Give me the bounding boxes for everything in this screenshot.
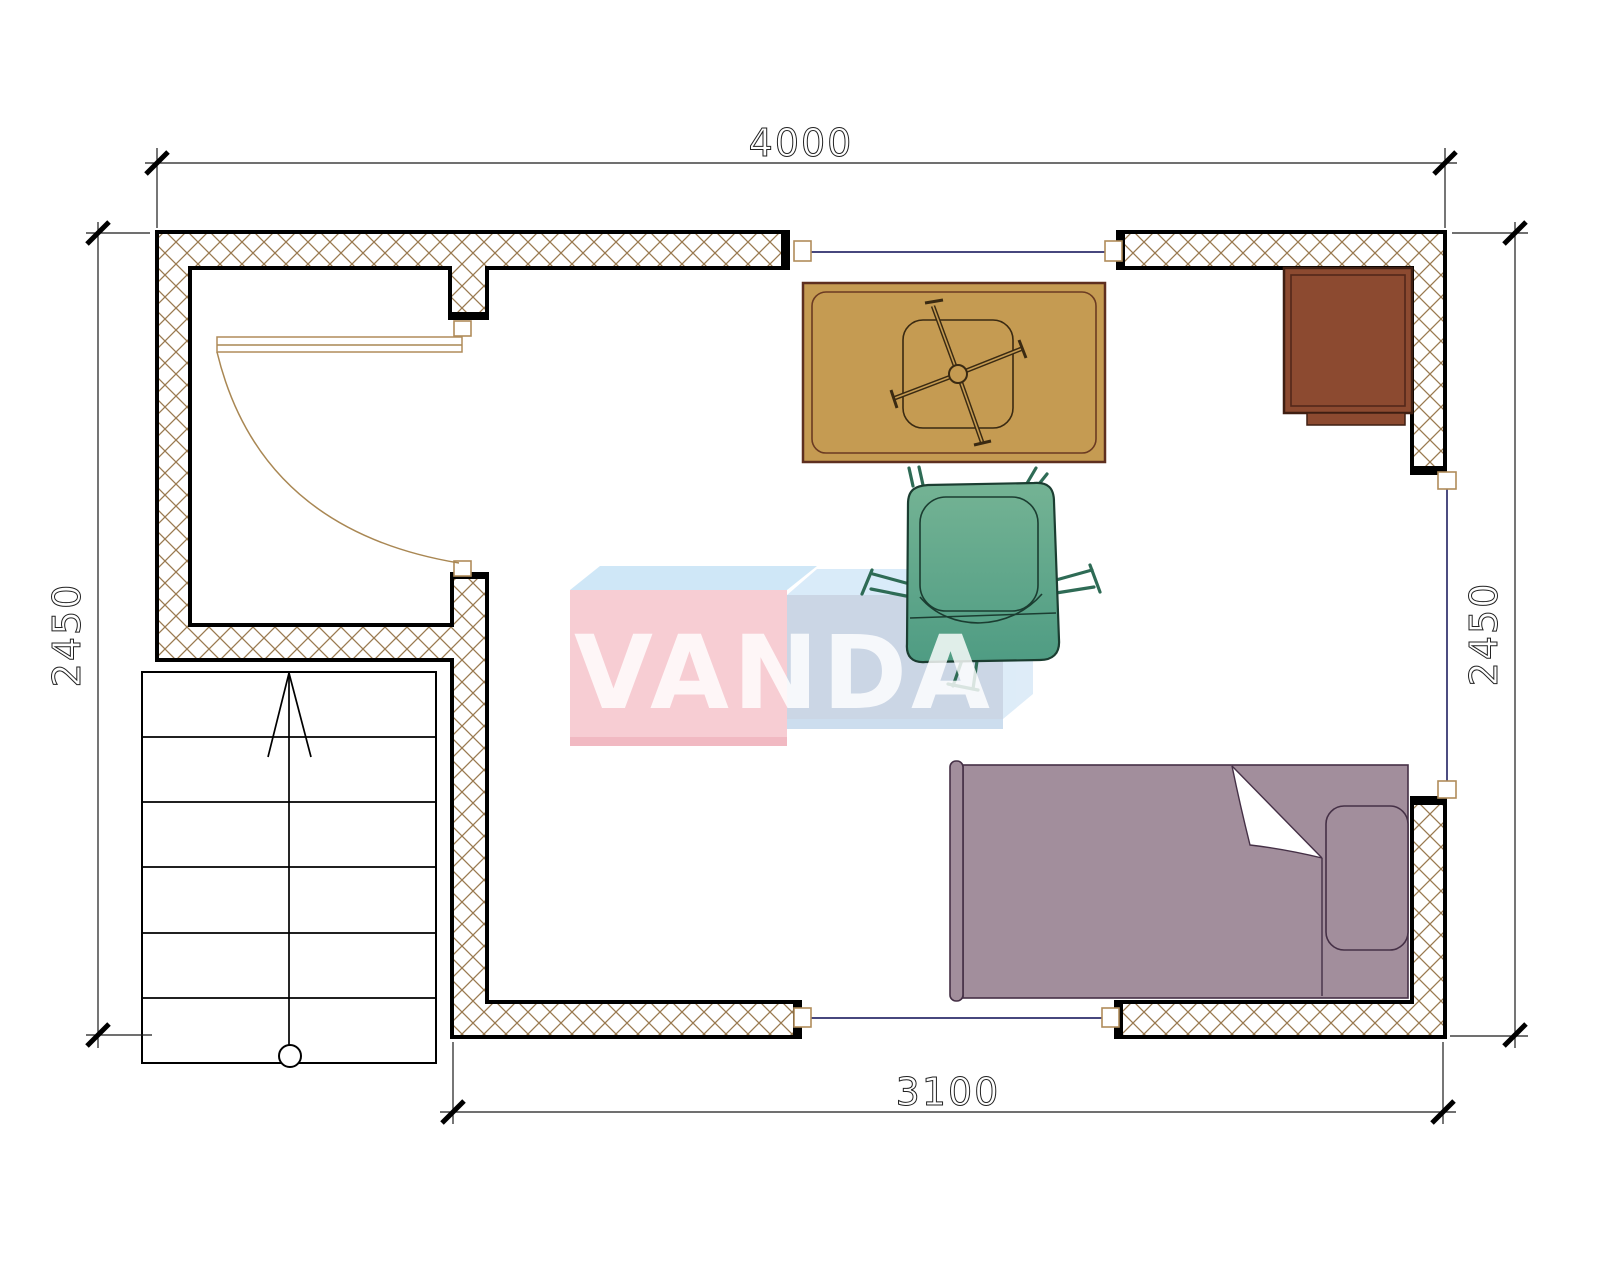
watermark-pink-box-top — [570, 566, 817, 590]
tucked-chair-base-hub — [949, 365, 967, 383]
wall-cap — [781, 230, 790, 270]
bed — [950, 761, 1408, 1001]
dimension-right-label: 2450 — [1462, 582, 1506, 687]
window-jamb — [794, 1008, 811, 1027]
window-jamb — [1438, 781, 1456, 798]
window-jamb — [794, 241, 811, 261]
table — [803, 283, 1105, 462]
door-jamb — [454, 321, 471, 336]
bed-footboard — [950, 761, 963, 1001]
dimension-bottom-label: 3100 — [896, 1070, 1001, 1114]
door — [217, 321, 471, 576]
wall-cap — [448, 312, 489, 320]
cabinet — [1284, 268, 1412, 425]
floor-plan-canvas: VANDA 4000 3100 2450 2450 — [0, 0, 1600, 1280]
stairs — [142, 672, 436, 1067]
watermark-pink-box-bottom — [570, 737, 787, 746]
watermark-text: VANDA — [574, 614, 994, 733]
window-jamb — [1105, 241, 1122, 261]
pillow — [1326, 806, 1408, 950]
window-jamb — [1438, 472, 1456, 489]
cabinet-body — [1284, 268, 1412, 413]
dimension-bottom: 3100 — [440, 1042, 1456, 1124]
stairs-start-marker — [279, 1045, 301, 1067]
cabinet-base-tab — [1307, 413, 1405, 425]
floor-plan-drawing: VANDA 4000 3100 2450 2450 — [0, 0, 1600, 1280]
window-jamb — [1102, 1008, 1119, 1027]
dimension-top: 4000 — [145, 121, 1457, 228]
dimension-top-label: 4000 — [749, 121, 854, 165]
dimension-left: 2450 — [45, 222, 152, 1048]
dimension-right: 2450 — [1450, 222, 1528, 1048]
dimension-left-label: 2450 — [45, 583, 89, 688]
door-swing-arc — [217, 352, 459, 563]
